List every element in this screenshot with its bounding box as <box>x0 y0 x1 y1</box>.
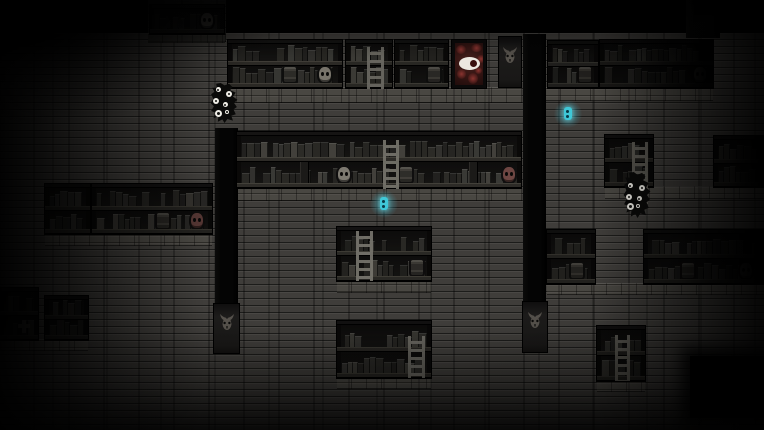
orb-dot <box>382 200 385 203</box>
dark-void-bottom-right <box>690 356 764 418</box>
creature-pupil <box>629 205 632 208</box>
creature-eye <box>213 98 219 104</box>
creature-eye <box>216 87 221 92</box>
glowing-cyan-orb-middle[interactable] <box>370 190 398 218</box>
layer-sprites <box>0 0 764 430</box>
creature-eye <box>626 194 632 200</box>
creature-pupil <box>224 104 226 106</box>
creature-eye <box>225 110 229 114</box>
orb-dot <box>566 110 569 113</box>
black-many-eyed-creature-left[interactable] <box>210 83 238 123</box>
creature-pupil <box>228 93 231 96</box>
creature-pupil <box>641 187 644 190</box>
creature-pupil <box>226 111 228 113</box>
creature-eye <box>627 203 634 210</box>
creature-eye <box>215 110 222 117</box>
creature-pupil <box>629 185 631 187</box>
glowing-cyan-orb-right[interactable] <box>554 100 582 128</box>
creature-eye <box>637 196 642 201</box>
orb-dot <box>382 205 385 208</box>
creature-eye <box>628 183 633 188</box>
creature-eye <box>223 102 228 107</box>
orb-dot <box>566 115 569 118</box>
creature-pupil <box>215 100 218 103</box>
creature-eye <box>226 91 232 97</box>
creature-pupil <box>638 198 640 200</box>
orb-body <box>380 197 388 210</box>
creature-eye <box>636 204 640 208</box>
game-canvas[interactable] <box>0 0 764 430</box>
creature-pupil <box>217 89 219 91</box>
black-many-eyed-creature-right[interactable] <box>623 172 651 218</box>
creature-pupil <box>217 112 220 115</box>
creature-eye <box>639 185 645 191</box>
creature-pupil <box>637 205 639 207</box>
creature-pupil <box>628 196 631 199</box>
orb-body <box>564 107 572 120</box>
